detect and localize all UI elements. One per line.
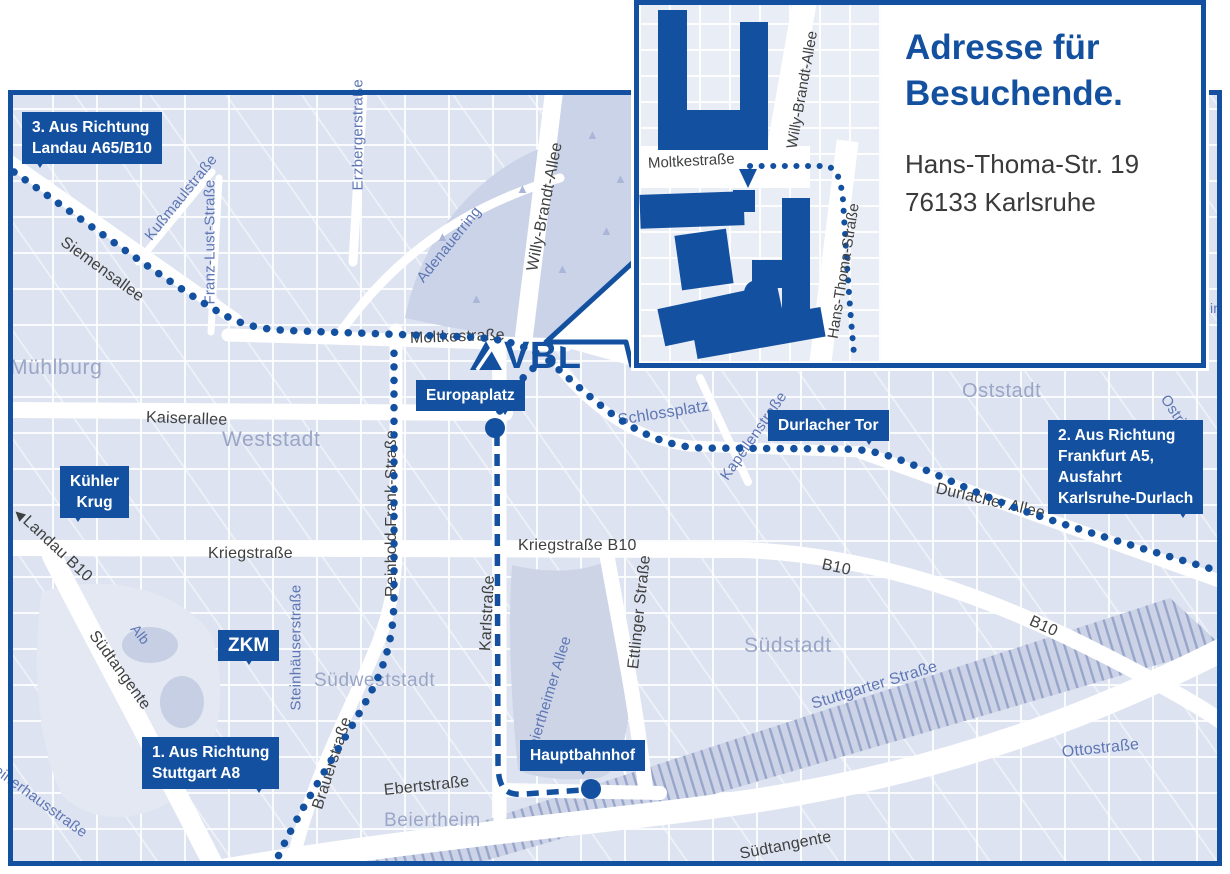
- badge-line: Hauptbahnhof: [530, 745, 635, 766]
- vbl-logo: VBL: [468, 338, 582, 372]
- europaplatz-stop-marker: [485, 418, 505, 438]
- inset-title: Adresse für Besuchende.: [905, 25, 1123, 117]
- callout-badge-durlacher-tor: Durlacher Tor: [768, 410, 889, 441]
- hauptbahnhof-stop-marker: [581, 779, 601, 799]
- callout-badge-hauptbahnhof: Hauptbahnhof: [520, 740, 645, 771]
- visitor-address-callout: MoltkestraßeWilly-Brandt-AlleeHans-Thoma…: [634, 0, 1206, 368]
- callout-badge-zkm: ZKM: [218, 630, 279, 661]
- badge-line: Krug: [70, 492, 119, 513]
- badge-line: Landau A65/B10: [32, 138, 152, 159]
- badge-line: Kühler: [70, 471, 119, 492]
- badge-line: Durlacher Tor: [778, 415, 879, 436]
- badge-line: 1. Aus Richtung: [152, 742, 269, 763]
- address-city: 76133 Karlsruhe: [905, 183, 1139, 221]
- address-street: Hans-Thoma-Str. 19: [905, 145, 1139, 183]
- inset-title-line1: Adresse für: [905, 25, 1123, 71]
- badge-line: Karlsruhe-Durlach: [1058, 488, 1193, 509]
- badge-line: Frankfurt A5,: [1058, 446, 1193, 467]
- callout-badge-kuehler-krug: KühlerKrug: [60, 466, 129, 518]
- route-1-stuttgart-dotted: [273, 340, 394, 868]
- badge-line: Ausfahrt: [1058, 467, 1193, 488]
- badge-line: Europaplatz: [426, 385, 515, 406]
- badge-line: 2. Aus Richtung: [1058, 425, 1193, 446]
- vbl-logo-triangle-icon: [468, 338, 504, 372]
- inset-title-line2: Besuchende.: [905, 71, 1123, 117]
- callout-badge-route-1: 1. Aus RichtungStuttgart A8: [142, 737, 279, 789]
- callout-badge-route-2: 2. Aus RichtungFrankfurt A5,AusfahrtKarl…: [1048, 420, 1203, 514]
- visitor-address: Hans-Thoma-Str. 19 76133 Karlsruhe: [905, 145, 1139, 221]
- callout-badge-route-3: 3. Aus RichtungLandau A65/B10: [22, 112, 162, 164]
- badge-line: Stuttgart A8: [152, 763, 269, 784]
- badge-line: 3. Aus Richtung: [32, 117, 152, 138]
- callout-badge-europaplatz: Europaplatz: [416, 380, 525, 411]
- route-3-landau-dotted: [14, 172, 542, 356]
- vbl-logo-text: VBL: [504, 340, 582, 372]
- badge-line: ZKM: [228, 635, 269, 656]
- entrance-arrow-icon: [739, 169, 757, 188]
- inset-detail-map: MoltkestraßeWilly-Brandt-AlleeHans-Thoma…: [639, 5, 881, 363]
